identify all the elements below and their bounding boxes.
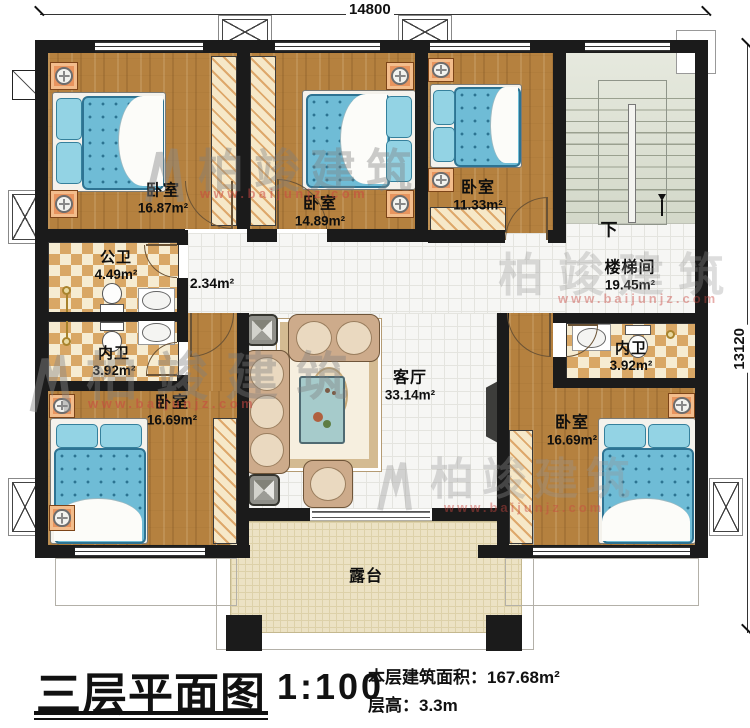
- bed-pillow: [604, 424, 646, 448]
- wall: [432, 508, 509, 521]
- bed-blanket: [490, 87, 518, 163]
- dimension-top-label: 14800: [346, 1, 394, 18]
- room-name: 卧室: [547, 414, 597, 432]
- floor-plan-image: 14800 13120: [0, 0, 750, 728]
- bed-blanket: [118, 96, 163, 186]
- wall: [237, 508, 310, 521]
- door-leaf: [546, 197, 548, 240]
- dimension-tick: [741, 38, 750, 48]
- wall: [415, 47, 428, 242]
- sofa: [288, 314, 380, 362]
- nightstand-lamp-icon: [50, 190, 78, 218]
- floor-height-value: 3.3m: [419, 696, 458, 715]
- floor-area-label: 本层建筑面积：: [368, 668, 487, 687]
- stair-direction-arrow: [661, 200, 663, 216]
- bed-blanket: [340, 94, 387, 184]
- room-label-bedroom-br: 卧室 16.69m²: [547, 414, 597, 447]
- room-name: 内卫: [93, 346, 136, 363]
- nightstand-lamp-icon: [50, 62, 78, 90]
- closet: [250, 56, 276, 226]
- wall: [428, 230, 505, 243]
- wall: [35, 229, 185, 242]
- wall: [35, 40, 48, 558]
- bed-pillow: [386, 96, 412, 138]
- bed-pillow: [386, 140, 412, 182]
- bed-pillow: [648, 424, 690, 448]
- nightstand-lamp-icon: [49, 394, 75, 418]
- room-label-hallway: 2.34m²: [190, 276, 234, 292]
- shower-knob-icon: [666, 330, 675, 339]
- room-label-stairwell: 楼梯间 19.45m²: [604, 259, 655, 292]
- wall: [553, 313, 695, 323]
- room-name: 内卫: [610, 341, 653, 358]
- room-name: 卧室: [147, 394, 197, 412]
- window-sill: [55, 558, 237, 606]
- title-underline: [34, 718, 268, 720]
- armchair: [303, 460, 353, 508]
- terrace-column: [486, 615, 522, 651]
- window: [95, 41, 203, 52]
- wall: [177, 278, 188, 342]
- closet: [213, 418, 237, 544]
- door-leaf: [146, 374, 177, 376]
- nightstand-lamp-icon: [428, 168, 454, 192]
- window: [585, 41, 670, 52]
- floor-height-label: 层高：: [368, 696, 419, 715]
- shower-knob-icon: [62, 286, 71, 295]
- shower-rail: [66, 292, 68, 312]
- wall: [35, 312, 177, 321]
- window: [275, 41, 380, 52]
- door-leaf: [549, 313, 551, 357]
- bed-pillow: [433, 127, 455, 162]
- floor-height-line: 层高：3.3m: [368, 691, 458, 716]
- side-table-lamp-icon: [248, 474, 280, 506]
- nightstand-lamp-icon: [668, 393, 695, 418]
- window-sill: [505, 558, 699, 606]
- door-leaf: [146, 244, 177, 246]
- window: [75, 546, 205, 557]
- window: [533, 546, 690, 557]
- room-area: 2.34m²: [190, 276, 234, 292]
- window-box: [709, 478, 743, 536]
- stair-direction-arrow-head: [658, 194, 666, 201]
- room-label-bedroom-tl: 卧室 16.87m²: [138, 182, 188, 215]
- nightstand-lamp-icon: [49, 505, 75, 531]
- dimension-right-label: 13120: [731, 325, 748, 373]
- stair-down-label: 下: [601, 220, 618, 239]
- room-label-public-bath: 公卫 4.49m²: [95, 250, 138, 282]
- room-name: 卧室: [138, 182, 188, 200]
- bed-pillow: [433, 90, 455, 125]
- room-area: 14.89m²: [295, 213, 345, 228]
- door-leaf: [190, 313, 192, 357]
- wall: [695, 40, 708, 558]
- room-label-bedroom-bl: 卧室 16.69m²: [147, 394, 197, 427]
- room-area: 3.92m²: [93, 363, 136, 378]
- sofa: [244, 350, 290, 474]
- toilet: [100, 283, 124, 313]
- room-name: 露台: [349, 568, 383, 586]
- wall: [553, 378, 695, 388]
- room-area: 4.49m²: [95, 267, 138, 282]
- wall: [548, 230, 566, 243]
- dimension-tick: [741, 624, 750, 634]
- room-name: 客厅: [385, 369, 435, 387]
- bed-pillow: [56, 424, 98, 448]
- floor-area-line: 本层建筑面积：167.68m²: [368, 663, 560, 688]
- room-label-bedroom-tr: 卧室 11.33m²: [453, 179, 503, 212]
- wall: [237, 47, 250, 229]
- bed-pillow: [100, 424, 142, 448]
- stair-railing: [628, 104, 636, 223]
- room-label-ensuite-left: 内卫 3.92m²: [93, 346, 136, 378]
- room-area: 3.92m²: [610, 358, 653, 373]
- wall: [177, 375, 188, 391]
- wall: [35, 381, 177, 391]
- wall: [247, 229, 277, 242]
- terrace-column: [226, 615, 262, 651]
- bed-pillow: [56, 98, 82, 140]
- door-leaf: [231, 181, 233, 229]
- room-name: 楼梯间: [604, 259, 655, 277]
- wall: [177, 230, 188, 245]
- room-name: 卧室: [453, 179, 503, 197]
- side-table-lamp-icon: [246, 314, 278, 346]
- room-area: 33.14m²: [385, 387, 435, 402]
- room-label-terrace: 露台: [349, 568, 383, 586]
- sink: [138, 320, 175, 345]
- room-area: 19.45m²: [604, 277, 655, 292]
- room-label-ensuite-right: 内卫 3.92m²: [610, 341, 653, 373]
- door-leaf: [568, 324, 598, 326]
- room-area: 16.87m²: [138, 200, 188, 215]
- room-name: 公卫: [95, 250, 138, 267]
- door-leaf: [277, 179, 279, 229]
- coffee-table: [299, 376, 345, 444]
- nightstand-lamp-icon: [428, 58, 454, 82]
- title-underline: [34, 711, 268, 715]
- closet: [509, 430, 533, 544]
- room-area: 16.69m²: [147, 412, 197, 427]
- room-area: 11.33m²: [453, 197, 503, 212]
- floor-area-value: 167.68m²: [487, 668, 560, 687]
- shower-knob-icon: [62, 337, 71, 346]
- wall: [327, 229, 415, 242]
- room-area: 16.69m²: [547, 432, 597, 447]
- sliding-door: [312, 511, 430, 518]
- room-label-living: 客厅 33.14m²: [385, 369, 435, 402]
- wall: [553, 47, 566, 243]
- window: [430, 41, 530, 52]
- room-name: 卧室: [295, 195, 345, 213]
- room-label-bedroom-tm: 卧室 14.89m²: [295, 195, 345, 228]
- sink: [138, 288, 175, 313]
- nightstand-lamp-icon: [386, 190, 414, 218]
- nightstand-lamp-icon: [386, 62, 414, 90]
- bed-blanket: [602, 498, 690, 541]
- bed-pillow: [56, 142, 82, 184]
